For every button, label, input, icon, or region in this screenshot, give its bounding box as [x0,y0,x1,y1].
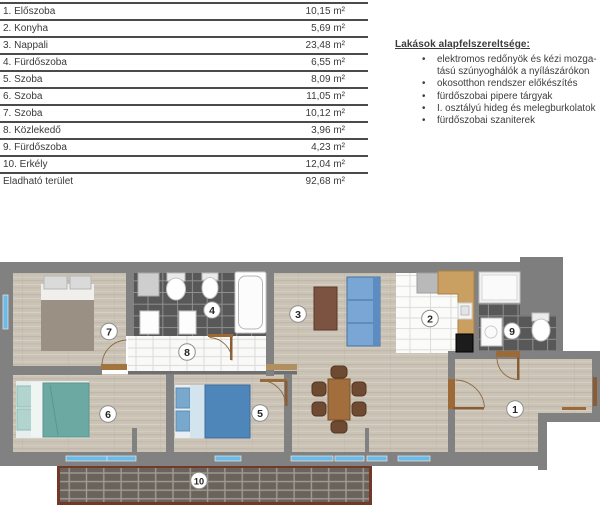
svg-text:4: 4 [209,305,215,317]
svg-text:5: 5 [257,408,263,420]
svg-text:3: 3 [295,309,301,321]
svg-text:6: 6 [105,409,111,421]
svg-text:2: 2 [427,314,433,326]
svg-text:8: 8 [184,347,190,359]
svg-text:1: 1 [512,404,518,416]
svg-text:7: 7 [106,327,112,339]
svg-text:9: 9 [509,326,515,338]
svg-text:10: 10 [194,477,204,487]
